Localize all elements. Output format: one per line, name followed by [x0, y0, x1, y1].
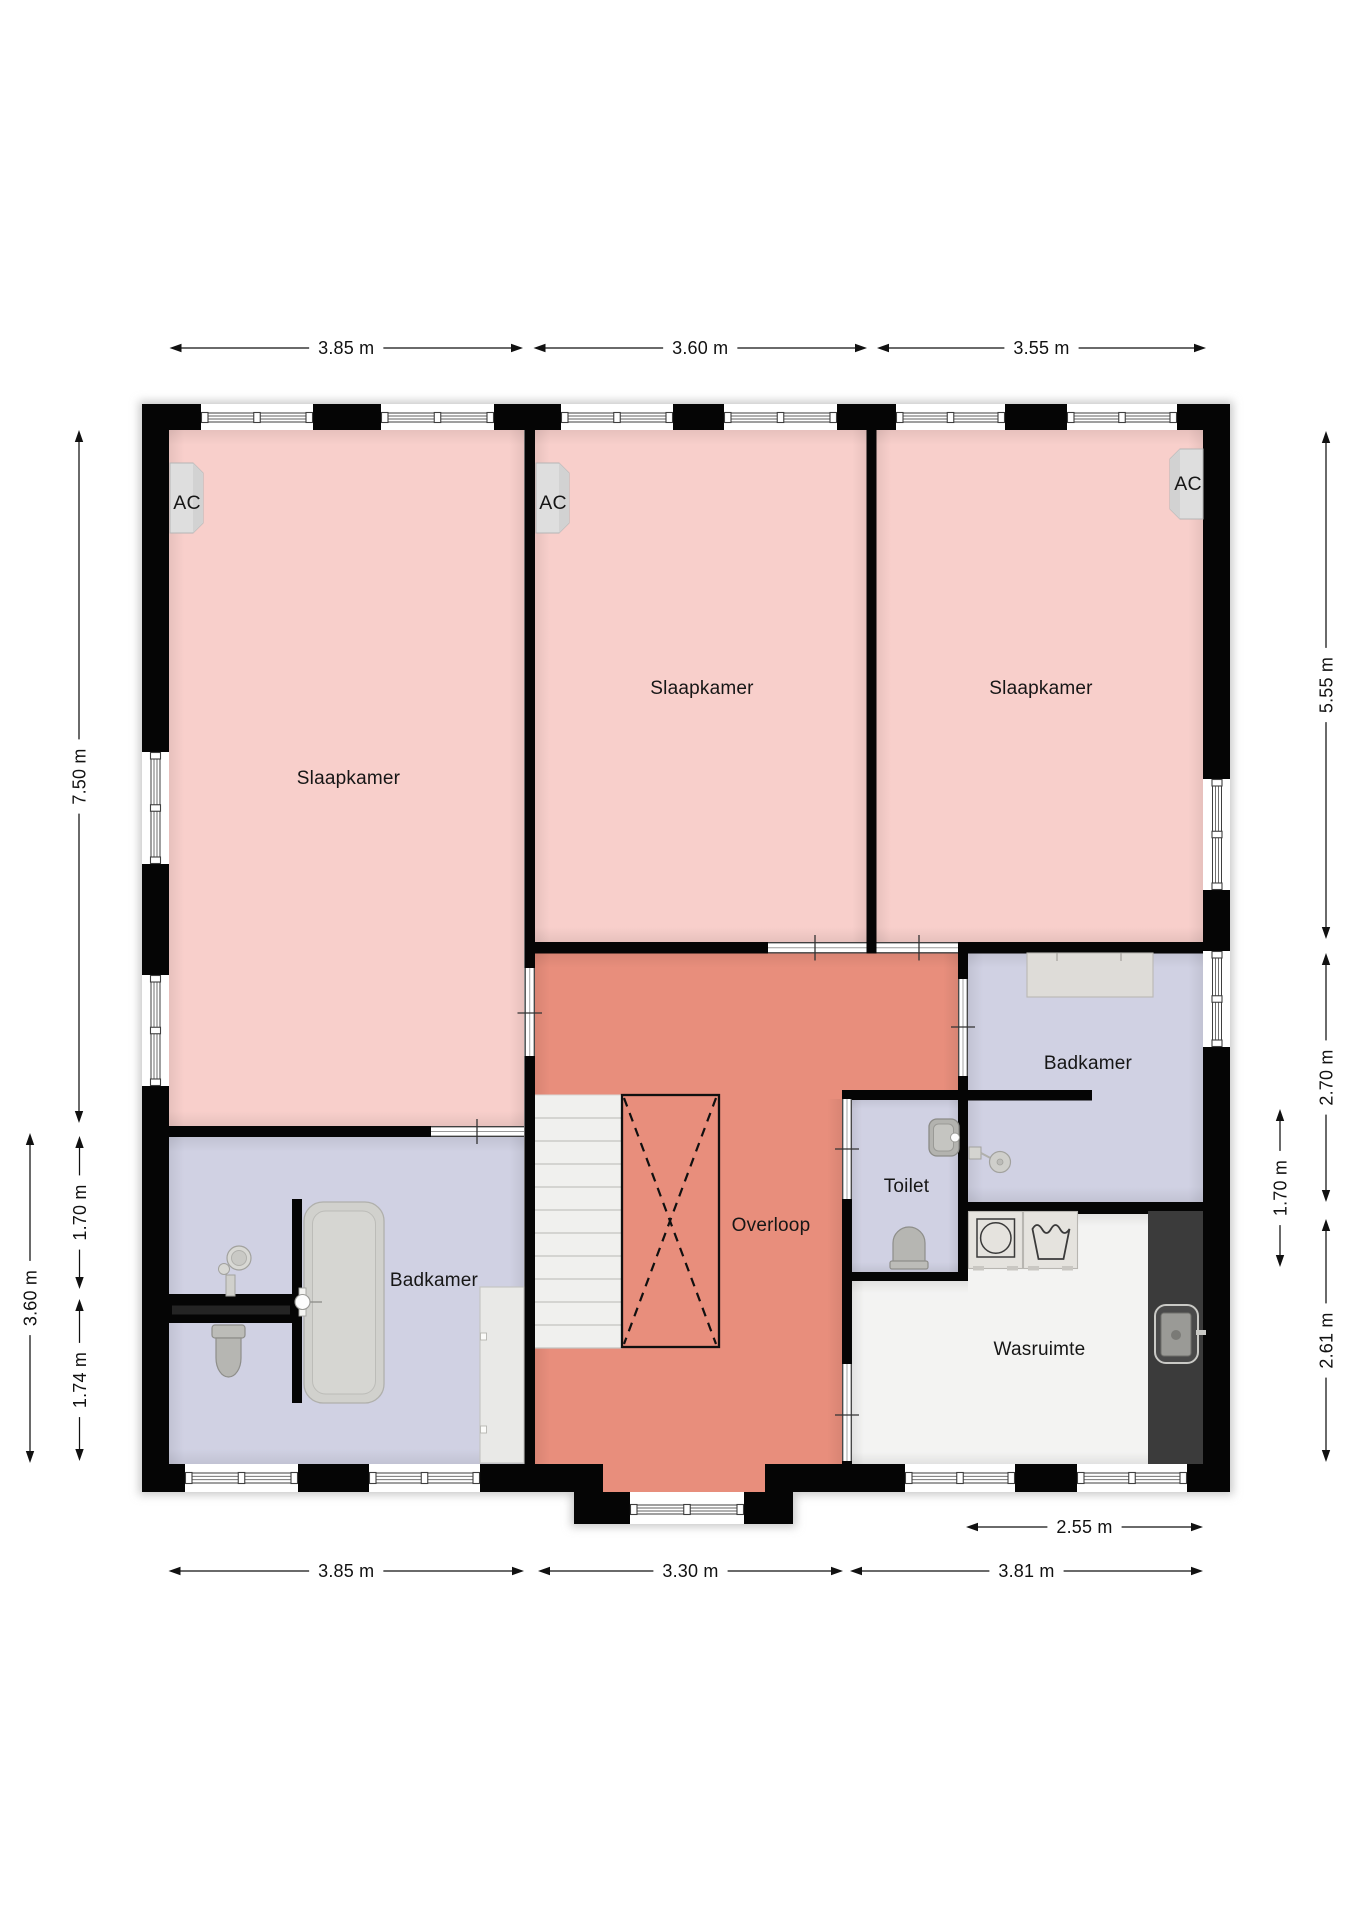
svg-text:3.85 m: 3.85 m	[318, 1561, 374, 1581]
svg-text:Slaapkamer: Slaapkamer	[297, 768, 401, 789]
svg-text:1.70 m: 1.70 m	[70, 1184, 90, 1240]
svg-text:3.85 m: 3.85 m	[318, 338, 374, 358]
svg-text:1.74 m: 1.74 m	[70, 1352, 90, 1408]
svg-text:AC: AC	[1174, 473, 1202, 495]
svg-text:5.55 m: 5.55 m	[1317, 657, 1337, 713]
svg-text:3.60 m: 3.60 m	[672, 338, 728, 358]
svg-text:Badkamer: Badkamer	[390, 1270, 479, 1291]
svg-text:Toilet: Toilet	[884, 1176, 930, 1197]
svg-text:Wasruimte: Wasruimte	[994, 1339, 1086, 1360]
svg-text:AC: AC	[539, 492, 567, 514]
svg-text:2.61 m: 2.61 m	[1317, 1312, 1337, 1368]
svg-text:7.50 m: 7.50 m	[70, 748, 90, 804]
svg-text:Slaapkamer: Slaapkamer	[650, 678, 754, 699]
svg-text:AC: AC	[173, 492, 201, 514]
svg-text:2.70 m: 2.70 m	[1317, 1049, 1337, 1105]
svg-text:1.70 m: 1.70 m	[1271, 1160, 1291, 1216]
svg-text:3.60 m: 3.60 m	[21, 1270, 41, 1326]
svg-text:Overloop: Overloop	[732, 1215, 811, 1236]
svg-text:Slaapkamer: Slaapkamer	[989, 678, 1093, 699]
svg-text:3.55 m: 3.55 m	[1013, 338, 1069, 358]
svg-text:3.81 m: 3.81 m	[998, 1561, 1054, 1581]
svg-text:3.30 m: 3.30 m	[662, 1561, 718, 1581]
svg-text:Badkamer: Badkamer	[1044, 1053, 1133, 1074]
svg-text:2.55 m: 2.55 m	[1056, 1517, 1112, 1537]
